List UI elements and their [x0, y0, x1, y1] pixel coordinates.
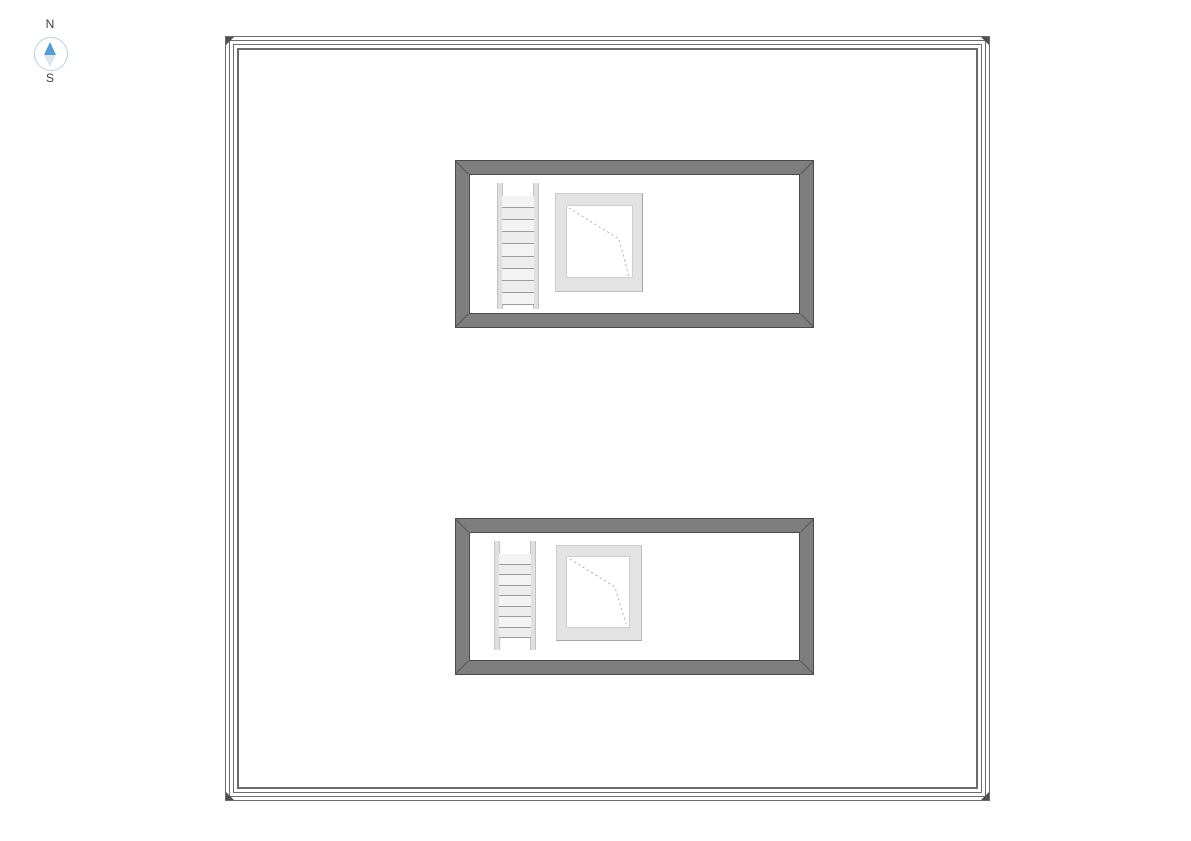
ladder-rungs: [499, 554, 531, 638]
ladder[interactable]: [494, 541, 536, 650]
wall-miter-line: [800, 161, 813, 174]
ladder-rung: [499, 607, 531, 618]
floor-plan-canvas: N S: [0, 0, 1191, 841]
hatch-swing-line: [567, 557, 631, 629]
compass: N S: [28, 6, 72, 82]
ladder-rung: [502, 281, 534, 293]
ladder-rung: [499, 575, 531, 586]
compass-north-label: N: [28, 18, 72, 30]
wall-miter-line: [455, 314, 468, 327]
wall-miter-line: [455, 661, 468, 674]
compass-south-label: S: [28, 72, 72, 84]
site-boundary[interactable]: [225, 36, 990, 801]
ladder-rung: [499, 565, 531, 576]
wall-miter-line: [800, 519, 813, 532]
compass-north-needle-icon: [44, 42, 56, 55]
ladder-rung: [499, 596, 531, 607]
roof-hatch[interactable]: [556, 545, 642, 641]
ladder-rung: [502, 293, 534, 305]
wall-miter-line: [455, 519, 468, 532]
compass-south-needle-icon: [44, 55, 56, 67]
ladder-rung: [502, 208, 534, 220]
wall-miter-line: [455, 161, 468, 174]
ladder-rung: [499, 628, 531, 639]
hatch-opening: [566, 205, 633, 278]
hatch-opening: [566, 556, 630, 628]
ladder-rung: [502, 232, 534, 244]
room-upper[interactable]: [456, 161, 813, 327]
ladder-rungs: [502, 196, 534, 305]
ladder-rung: [502, 244, 534, 256]
ladder-rung: [502, 257, 534, 269]
room-lower[interactable]: [456, 519, 813, 674]
ladder-rung: [502, 269, 534, 281]
boundary-line-inner: [237, 48, 978, 789]
wall-miter-line: [800, 314, 813, 327]
ladder-rung: [502, 220, 534, 232]
roof-hatch[interactable]: [555, 193, 643, 292]
ladder-rung: [499, 586, 531, 597]
ladder[interactable]: [497, 183, 539, 309]
ladder-rung: [499, 554, 531, 565]
hatch-swing-line: [567, 206, 634, 279]
ladder-rung: [502, 196, 534, 208]
wall-miter-line: [800, 661, 813, 674]
ladder-rung: [499, 617, 531, 628]
